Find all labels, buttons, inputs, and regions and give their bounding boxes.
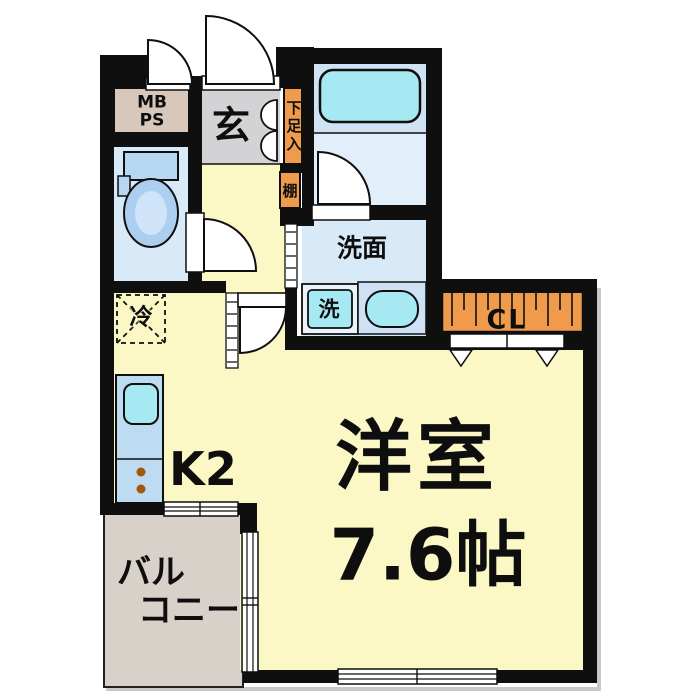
- toilet-tank: [124, 152, 178, 180]
- meter-box-label: MB PS: [137, 94, 167, 131]
- kitchen-label: K2: [169, 445, 237, 495]
- closet-label: CL: [486, 305, 527, 334]
- main-room-window: [338, 669, 497, 684]
- shoe-cabinet-label: 下足入: [286, 100, 301, 154]
- balcony-label-line2: コニー: [138, 593, 240, 630]
- balcony-sliding-door: [242, 532, 258, 672]
- vanity-sink: [366, 291, 418, 327]
- toilet-door-threshold: [186, 213, 204, 272]
- bathroom-door-threshold: [312, 205, 370, 220]
- western-room-area: [240, 348, 583, 670]
- stove-burner: [137, 485, 146, 494]
- western-room-size: 7.6帖: [330, 518, 527, 595]
- refrigerator-label: 冷: [130, 306, 153, 331]
- open-partition-kitchen: [226, 293, 238, 368]
- stove-burner: [137, 468, 146, 477]
- balcony-label-line1: バル: [117, 555, 185, 592]
- kitchen-balcony-window: [164, 502, 238, 516]
- shelf-label: 棚: [282, 183, 297, 199]
- entrance-label: 玄: [212, 105, 250, 146]
- kitchen-sink: [124, 384, 158, 424]
- open-partition-washroom: [285, 224, 297, 288]
- floorplan-canvas: MB PS 玄 下足入 棚 洗面 洗 冷 CL K2 洋室 7.6帖 バル コニ…: [0, 0, 700, 700]
- western-room-name: 洋室: [335, 416, 499, 499]
- entrance-door-arc: [206, 16, 274, 84]
- washing-machine-label: 洗: [319, 299, 340, 322]
- washroom-label: 洗面: [337, 235, 387, 262]
- toilet-bowl-inner: [135, 191, 167, 235]
- bathtub: [320, 70, 420, 122]
- hall-door-leaf: [238, 293, 286, 307]
- meter-box-door-arc: [148, 40, 192, 84]
